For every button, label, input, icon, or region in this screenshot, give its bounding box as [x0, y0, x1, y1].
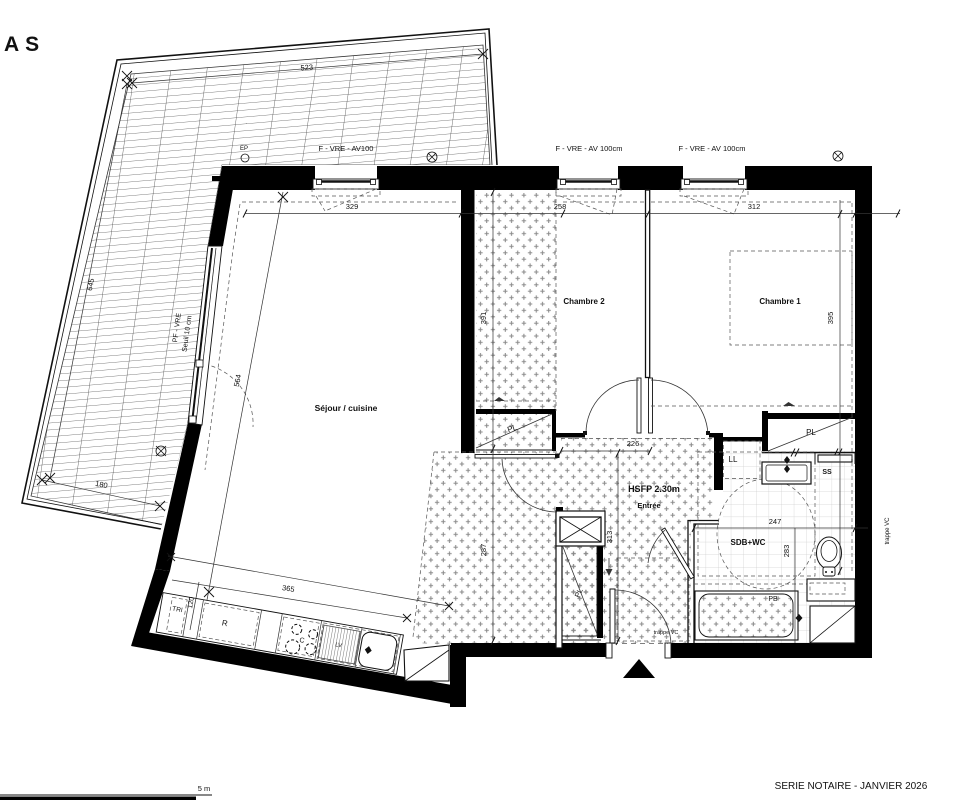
svg-text:247: 247 [769, 517, 782, 526]
svg-text:226: 226 [627, 439, 640, 448]
svg-text:LV: LV [335, 642, 343, 649]
svg-text:329: 329 [346, 202, 359, 211]
svg-text:PB: PB [768, 596, 778, 603]
svg-text:HSFP 2.30m: HSFP 2.30m [628, 484, 680, 494]
svg-text:SS: SS [822, 469, 832, 476]
svg-text:SERIE NOTAIRE - JANVIER 2026: SERIE NOTAIRE - JANVIER 2026 [775, 781, 928, 792]
svg-text:312: 312 [748, 202, 761, 211]
svg-text:287: 287 [479, 544, 488, 557]
svg-text:Séjour / cuisine: Séjour / cuisine [315, 403, 378, 413]
svg-text:trappe VC: trappe VC [654, 630, 679, 636]
svg-text:313: 313 [605, 531, 614, 544]
svg-text:EP: EP [240, 146, 248, 152]
svg-text:LL: LL [729, 455, 738, 464]
svg-text:AS: AS [4, 33, 45, 56]
svg-text:395: 395 [826, 312, 835, 325]
svg-text:523: 523 [300, 62, 313, 72]
svg-text:F - VRE - AV 100cm: F - VRE - AV 100cm [556, 144, 623, 153]
svg-text:Entrée: Entrée [637, 501, 660, 510]
svg-text:391: 391 [479, 312, 488, 325]
svg-text:283: 283 [782, 545, 791, 558]
svg-text:SDB+WC: SDB+WC [731, 538, 766, 547]
svg-text:F - VRE - AV100: F - VRE - AV100 [319, 144, 374, 153]
svg-text:Chambre 1: Chambre 1 [759, 297, 801, 306]
svg-text:PL: PL [806, 428, 816, 437]
svg-text:F - VRE - AV 100cm: F - VRE - AV 100cm [679, 144, 746, 153]
svg-text:Chambre 2: Chambre 2 [563, 297, 605, 306]
svg-text:trappe VC: trappe VC [885, 517, 891, 545]
svg-text:5 m: 5 m [198, 784, 211, 793]
svg-text:258: 258 [554, 202, 567, 211]
